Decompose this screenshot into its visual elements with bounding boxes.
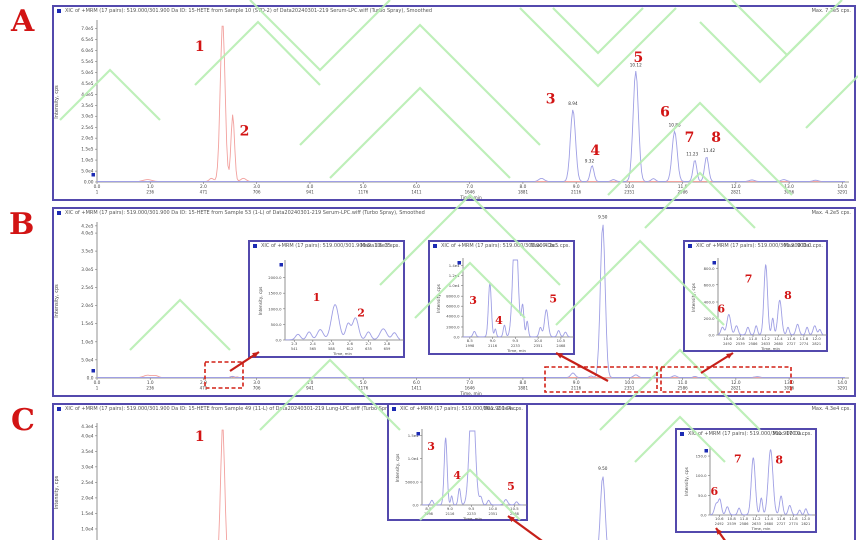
annotation-watermark-overlay (0, 0, 858, 540)
watermark-chevron-pattern (60, 0, 858, 520)
zoom-region-dashed-box (661, 367, 791, 392)
figure-annotations (205, 352, 791, 540)
figure-canvas: A B C XIC of +MRM (17 pairs): 519.000/30… (0, 0, 858, 540)
zoom-arrow (508, 516, 549, 540)
